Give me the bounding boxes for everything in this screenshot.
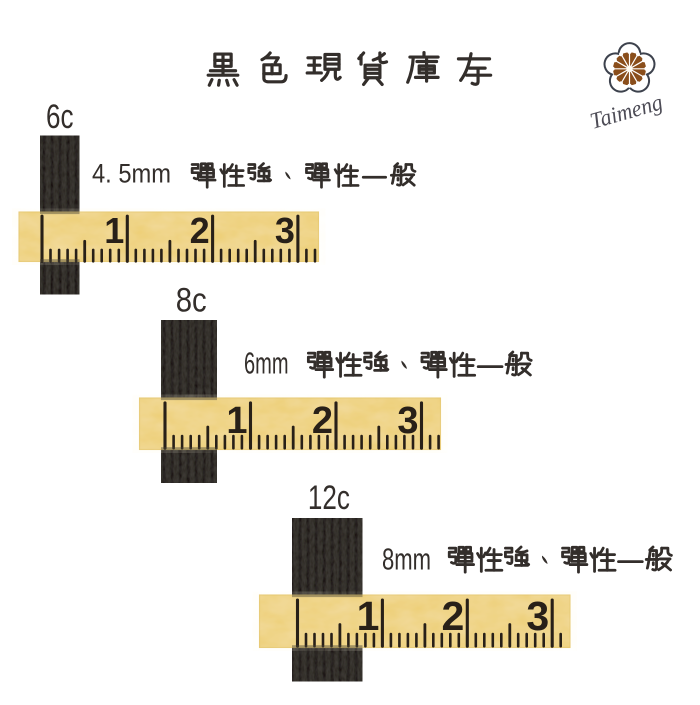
svg-text:4. 5mm: 4. 5mm (92, 159, 171, 189)
svg-text:12c: 12c (308, 479, 350, 517)
svg-text:2: 2 (441, 593, 464, 639)
svg-text:3: 3 (526, 593, 549, 639)
svg-text:1: 1 (104, 210, 124, 251)
svg-text:2: 2 (190, 210, 210, 251)
svg-text:8c: 8c (176, 282, 207, 320)
svg-text:6c: 6c (46, 98, 74, 136)
svg-text:3: 3 (275, 210, 295, 251)
svg-text:8mm: 8mm (382, 542, 431, 577)
svg-text:3: 3 (397, 400, 418, 442)
svg-text:1: 1 (357, 593, 380, 639)
svg-text:6mm: 6mm (244, 346, 289, 381)
svg-text:2: 2 (312, 400, 333, 442)
svg-text:1: 1 (226, 400, 247, 442)
